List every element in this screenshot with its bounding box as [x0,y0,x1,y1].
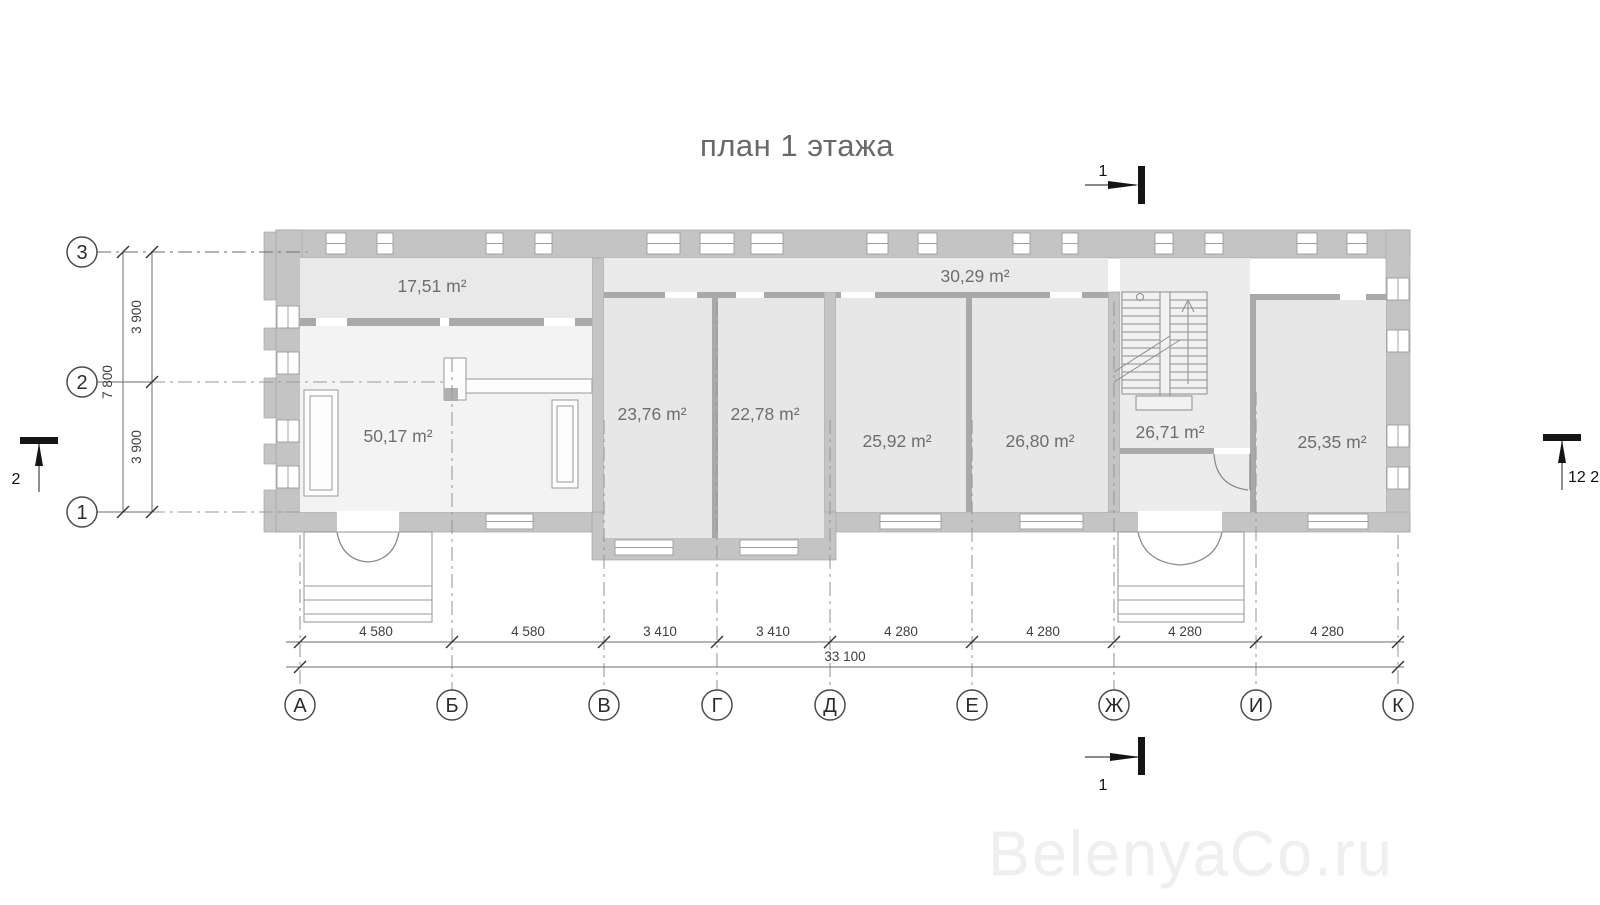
dimension-label: 4 280 [1026,624,1060,639]
opening [544,318,575,326]
door-opening [1214,448,1250,454]
bench-right [552,400,578,488]
dimension-label: 4 580 [511,624,545,639]
pilaster [264,490,276,532]
page-title: план 1 этажа [700,128,894,164]
wall-over-25-35 [1256,294,1386,300]
door-opening [1050,292,1082,298]
room-23-76-label: 23,76 m² [617,404,686,424]
section-label-top: 1 [1099,163,1108,180]
dimension-total-label: 7 800 [100,365,115,399]
drawing-stage: план 1 этажа [0,0,1600,900]
axis-number: 3 [76,242,87,264]
entrance-door-right-leaf [1138,532,1180,565]
opening [316,318,347,326]
entrance-door-right-leaf [1180,532,1222,565]
axis-letter: Ж [1105,695,1124,717]
floor-plan-page: { "title": "план 1 этажа", "watermark": … [0,0,1600,900]
dimension-total-label: 33 100 [824,649,865,664]
axis-number: 2 [76,372,87,394]
room-26-80-label: 26,80 m² [1005,431,1074,451]
dimension-label: 4 280 [1168,624,1202,639]
section-marker-right: 12 2 [1543,434,1599,490]
opening [1340,294,1366,300]
dimension-label: 4 280 [1310,624,1344,639]
corridor-30-29-label: 30,29 m² [940,266,1009,286]
corridor-wall-left [604,292,824,298]
top-wall [276,230,1410,258]
pilaster [264,328,276,350]
pilaster [264,232,276,300]
wall-axis-v [592,258,604,512]
dimension-label: 4 580 [359,624,393,639]
section-marker-bottom: 1 [1085,737,1145,794]
staircase [1114,292,1207,410]
room-25-35-label: 25,35 m² [1297,432,1366,452]
porch-left [304,532,432,622]
pilaster [264,444,276,464]
entrance-opening-left [337,511,399,533]
room-17-51-label: 17,51 m² [397,276,466,296]
axis-letter: Д [823,695,837,717]
axis-letter: К [1392,695,1404,717]
entrance-opening-right [1138,511,1222,533]
door-opening [736,292,764,298]
section-label-bottom: 1 [1099,777,1108,794]
corridor-area [604,258,1108,292]
room-50-17-label: 50,17 m² [363,426,432,446]
dimension-label: 3 410 [643,624,677,639]
room-50-17-area [300,326,592,512]
room-25-35-area [1256,300,1386,512]
section-label-left: 2 [12,471,21,488]
door-opening [841,292,875,298]
column-base [444,388,458,401]
stair-hall-26-71-label: 26,71 m² [1135,422,1204,442]
dimension-label: 3 900 [129,430,144,464]
section-marker-left: 2 [12,437,58,492]
axis-letter: В [597,695,610,717]
axis-letter: Е [965,695,978,717]
porch-right [1118,532,1244,622]
axis-letter: И [1249,695,1263,717]
dimension-label: 3 410 [756,624,790,639]
dimension-label: 4 280 [884,624,918,639]
room-26-80-area [972,298,1108,512]
bench-left [304,390,338,496]
room-25-92-area [836,298,966,512]
opening [440,318,449,326]
axis-letter: А [293,695,307,717]
section-marker-top: 1 [1085,163,1145,204]
axis-letter: Б [445,695,458,717]
entrance-door-left-leaf [337,532,368,562]
dimension-label: 3 900 [129,300,144,334]
section-label-right: 12 2 [1568,469,1599,486]
partition-i [1250,294,1256,512]
bottom-wall [276,512,1410,532]
door-opening [665,292,697,298]
room-25-92-label: 25,92 m² [862,431,931,451]
axis-letter: Г [712,695,723,717]
partition-e [966,298,972,512]
axis-number: 1 [76,502,87,524]
stair-landing [1136,396,1192,410]
room-22-78-label: 22,78 m² [730,404,799,424]
pilaster [264,378,276,418]
entrance-door-left-leaf [368,532,399,562]
watermark: BelenyaCo.ru [988,818,1394,890]
